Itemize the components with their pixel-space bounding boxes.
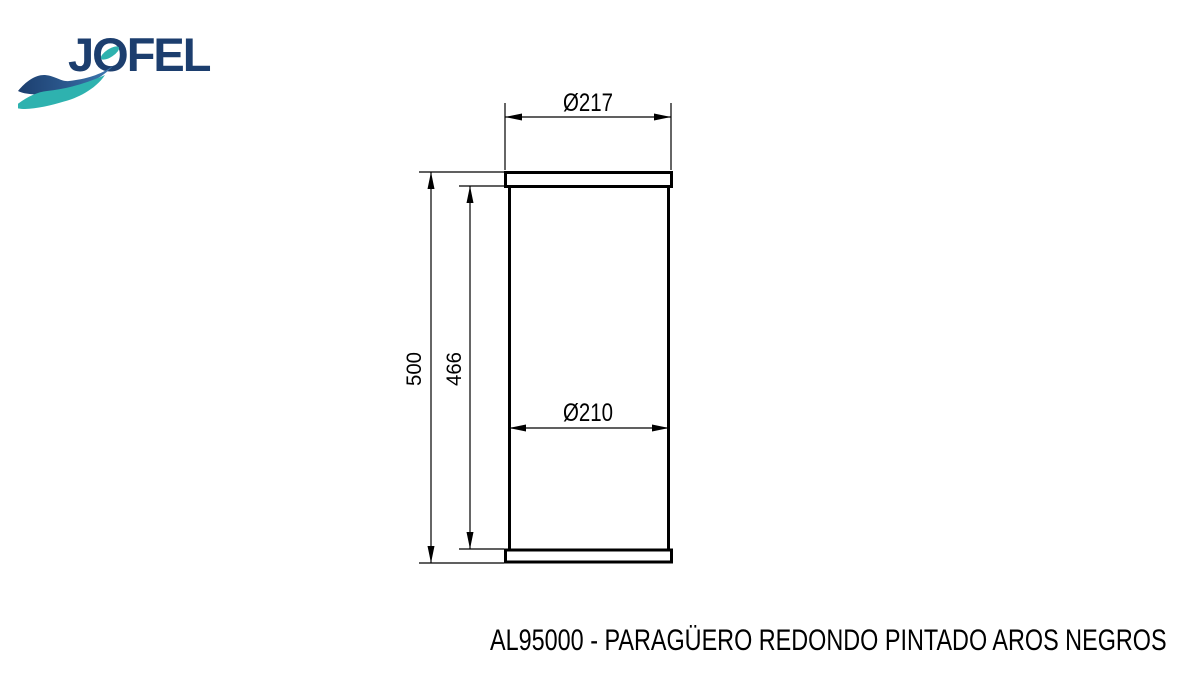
dim-210-arrow-left-icon <box>509 425 526 432</box>
dim-label-body-diameter: Ø210 <box>563 399 613 427</box>
dim-label-top-diameter: Ø217 <box>563 89 613 117</box>
dim-466-arrow-top-icon <box>467 186 474 203</box>
dim-500-arrow-bottom-icon <box>428 546 435 563</box>
dim-217-arrow-right-icon <box>654 114 671 121</box>
dim-466-arrow-bottom-icon <box>467 532 474 549</box>
page: JOFEL <box>0 0 1200 700</box>
dim-500-arrow-top-icon <box>428 172 435 189</box>
dim-label-overall-height: 500 <box>403 352 426 386</box>
product-caption: AL95000 - PARAGÜERO REDONDO PINTADO AROS… <box>490 626 1167 656</box>
dim-label-body-height: 466 <box>443 352 466 386</box>
dim-217-arrow-left-icon <box>505 114 522 121</box>
technical-drawing: Ø217 Ø210 500 466 <box>0 0 1200 700</box>
bottom-ring-outline <box>506 550 672 562</box>
dim-210-arrow-right-icon <box>652 425 669 432</box>
top-ring-outline <box>506 173 672 187</box>
